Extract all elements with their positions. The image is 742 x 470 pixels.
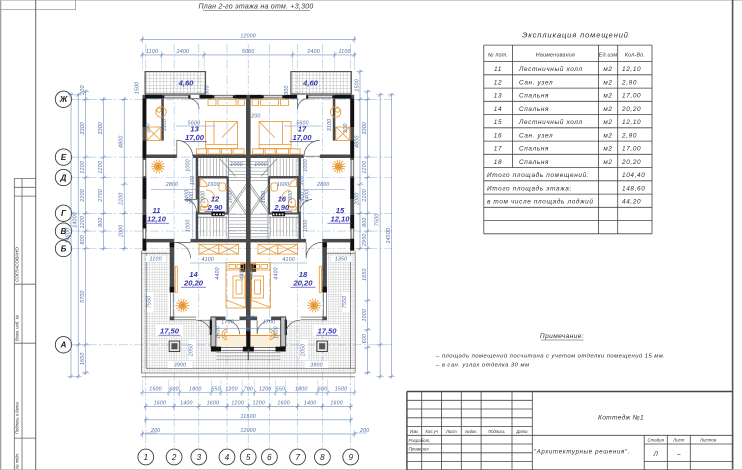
svg-text:3: 3 bbox=[197, 453, 202, 462]
svg-text:1600: 1600 bbox=[154, 401, 167, 407]
svg-text:5: 5 bbox=[246, 453, 251, 462]
svg-text:1000: 1000 bbox=[186, 219, 192, 232]
svg-text:м2: м2 bbox=[603, 79, 612, 86]
svg-text:17,00: 17,00 bbox=[622, 146, 641, 153]
svg-text:Б: Б bbox=[61, 244, 67, 253]
svg-text:11: 11 bbox=[494, 66, 502, 73]
svg-text:Проверил: Проверил bbox=[409, 447, 430, 452]
svg-text:Подпись и дата: Подпись и дата bbox=[15, 402, 20, 434]
svg-text:9: 9 bbox=[348, 453, 353, 462]
svg-text:600: 600 bbox=[318, 387, 327, 393]
svg-text:Ж: Ж bbox=[59, 95, 68, 104]
svg-text:18: 18 bbox=[494, 159, 502, 166]
svg-text:– в сан. узлах отделка 30: – в сан. узлах отделка 30 мм bbox=[435, 363, 529, 369]
svg-text:Кол.уч: Кол.уч bbox=[425, 429, 438, 434]
svg-text:2400: 2400 bbox=[299, 192, 305, 206]
svg-text:Изм.: Изм. bbox=[410, 429, 419, 434]
svg-text:4400: 4400 bbox=[274, 267, 280, 280]
svg-text:14000: 14000 bbox=[73, 212, 79, 228]
svg-text:1200: 1200 bbox=[225, 387, 238, 393]
svg-text:17: 17 bbox=[494, 146, 502, 153]
svg-text:2400: 2400 bbox=[176, 49, 190, 55]
svg-text:Экспликация помещений: Экспликация помещений bbox=[522, 31, 629, 40]
svg-text:Е: Е bbox=[61, 153, 67, 162]
svg-text:1800: 1800 bbox=[261, 191, 267, 204]
svg-text:200: 200 bbox=[343, 123, 349, 133]
svg-text:1800: 1800 bbox=[189, 387, 202, 393]
svg-text:2400: 2400 bbox=[189, 192, 195, 206]
svg-text:300: 300 bbox=[205, 85, 211, 94]
svg-text:12000: 12000 bbox=[240, 34, 256, 40]
svg-text:7550: 7550 bbox=[342, 296, 348, 309]
svg-text:1700: 1700 bbox=[263, 320, 276, 326]
svg-text:2200: 2200 bbox=[119, 192, 125, 206]
svg-text:4400: 4400 bbox=[249, 267, 255, 280]
svg-text:1200: 1200 bbox=[98, 161, 104, 174]
svg-text:–: – bbox=[676, 451, 681, 458]
svg-text:2950: 2950 bbox=[362, 234, 368, 248]
svg-text:20,20: 20,20 bbox=[292, 279, 313, 288]
svg-text:1400: 1400 bbox=[180, 401, 193, 407]
svg-text:2000: 2000 bbox=[201, 191, 207, 205]
svg-text:20,20: 20,20 bbox=[621, 159, 641, 166]
svg-text:1000: 1000 bbox=[230, 162, 243, 168]
svg-text:1200: 1200 bbox=[231, 401, 244, 407]
svg-text:17,50: 17,50 bbox=[317, 327, 337, 336]
svg-text:2000: 2000 bbox=[119, 225, 125, 239]
svg-text:1500: 1500 bbox=[135, 82, 141, 95]
svg-text:"Архитектурные решения".: "Архитектурные решения". bbox=[534, 450, 630, 456]
svg-text:17,00: 17,00 bbox=[292, 133, 312, 142]
svg-text:12,10: 12,10 bbox=[147, 215, 167, 224]
svg-text:5000: 5000 bbox=[242, 49, 255, 55]
svg-text:Кол-Во.: Кол-Во. bbox=[625, 53, 645, 59]
svg-text:Сан. узел: Сан. узел bbox=[519, 132, 553, 139]
svg-text:16: 16 bbox=[494, 132, 502, 139]
svg-text:17,00: 17,00 bbox=[185, 133, 205, 142]
svg-text:№док.: №док. bbox=[465, 429, 477, 434]
svg-text:2700: 2700 bbox=[98, 189, 104, 203]
svg-text:100: 100 bbox=[299, 176, 305, 185]
svg-text:148,60: 148,60 bbox=[622, 185, 645, 192]
svg-text:600: 600 bbox=[169, 387, 178, 393]
svg-text:План 2-го этажа на отм. +3,300: План 2-го этажа на отм. +3,300 bbox=[198, 4, 313, 11]
svg-text:5600: 5600 bbox=[188, 121, 201, 127]
svg-text:800: 800 bbox=[80, 235, 86, 244]
svg-text:8: 8 bbox=[320, 453, 325, 462]
svg-text:Подпись: Подпись bbox=[488, 429, 505, 434]
svg-text:4: 4 bbox=[225, 453, 230, 462]
svg-text:1000: 1000 bbox=[362, 309, 368, 322]
svg-text:Наименования: Наименования bbox=[536, 53, 575, 59]
svg-text:м2: м2 bbox=[603, 119, 612, 126]
svg-text:17,00: 17,00 bbox=[622, 93, 641, 100]
svg-text:2050: 2050 bbox=[188, 344, 194, 358]
svg-text:200: 200 bbox=[244, 316, 254, 322]
svg-text:3900: 3900 bbox=[174, 362, 187, 368]
svg-text:1800: 1800 bbox=[295, 387, 308, 393]
svg-text:Спальня: Спальня bbox=[519, 159, 549, 166]
svg-text:104,40: 104,40 bbox=[622, 172, 645, 179]
svg-text:12,10: 12,10 bbox=[622, 66, 641, 73]
svg-text:11600: 11600 bbox=[241, 414, 256, 420]
svg-text:1200: 1200 bbox=[80, 216, 86, 229]
svg-text:2,90: 2,90 bbox=[621, 132, 637, 139]
svg-text:550: 550 bbox=[211, 387, 220, 393]
svg-text:12,10: 12,10 bbox=[330, 215, 350, 224]
svg-text:1500: 1500 bbox=[355, 79, 361, 92]
svg-text:Сан. узел: Сан. узел bbox=[519, 79, 553, 86]
svg-text:1600: 1600 bbox=[330, 401, 343, 407]
svg-text:№ пот.: № пот. bbox=[488, 53, 508, 59]
svg-text:Ед.изм: Ед.изм bbox=[599, 53, 618, 59]
svg-text:200: 200 bbox=[146, 123, 152, 133]
svg-text:2,90: 2,90 bbox=[207, 203, 224, 212]
svg-text:4800: 4800 bbox=[355, 135, 361, 148]
svg-text:2000: 2000 bbox=[288, 191, 294, 205]
svg-text:14500: 14500 bbox=[386, 228, 392, 244]
svg-text:Лестничный холл: Лестничный холл bbox=[518, 118, 583, 126]
svg-text:4100: 4100 bbox=[282, 257, 295, 263]
svg-text:3900: 3900 bbox=[310, 362, 323, 368]
svg-text:Примечание:: Примечание: bbox=[540, 333, 584, 340]
svg-text:1400: 1400 bbox=[304, 401, 317, 407]
svg-text:12,10: 12,10 bbox=[622, 119, 641, 126]
svg-text:№ подл.: № подл. bbox=[15, 453, 20, 469]
svg-text:100: 100 bbox=[190, 176, 196, 185]
svg-text:1000: 1000 bbox=[247, 166, 253, 179]
svg-text:200: 200 bbox=[80, 85, 86, 95]
svg-text:1100: 1100 bbox=[339, 49, 351, 55]
svg-text:14: 14 bbox=[494, 106, 502, 113]
svg-text:1000: 1000 bbox=[254, 162, 267, 168]
svg-text:в том числе площадь лоджий: в том числе площадь лоджий bbox=[487, 198, 594, 206]
svg-text:2800: 2800 bbox=[165, 182, 179, 188]
svg-text:Лист: Лист bbox=[672, 437, 685, 442]
svg-text:2400: 2400 bbox=[306, 49, 320, 55]
svg-text:Итого площадь этажа:: Итого площадь этажа: bbox=[487, 184, 572, 192]
svg-text:3300: 3300 bbox=[80, 122, 86, 135]
svg-text:Спальня: Спальня bbox=[519, 106, 549, 113]
svg-text:1600: 1600 bbox=[207, 182, 220, 188]
svg-text:6: 6 bbox=[267, 453, 272, 462]
svg-text:– площадь помещений посчит: – площадь помещений посчитана с учетом о… bbox=[435, 353, 665, 360]
svg-text:3300: 3300 bbox=[362, 122, 368, 135]
svg-text:Спальня: Спальня bbox=[519, 93, 549, 100]
svg-text:1350: 1350 bbox=[335, 257, 348, 263]
svg-text:15: 15 bbox=[494, 119, 502, 126]
svg-text:7500: 7500 bbox=[375, 214, 381, 227]
svg-text:2,90: 2,90 bbox=[621, 79, 637, 86]
svg-text:1000: 1000 bbox=[186, 159, 192, 172]
svg-text:2000: 2000 bbox=[355, 192, 361, 206]
svg-text:4400: 4400 bbox=[240, 267, 246, 280]
svg-text:7: 7 bbox=[295, 453, 300, 462]
svg-text:1650: 1650 bbox=[80, 353, 86, 366]
svg-text:550: 550 bbox=[276, 387, 285, 393]
svg-text:20,20: 20,20 bbox=[183, 279, 204, 288]
svg-text:м2: м2 bbox=[603, 66, 612, 73]
svg-text:12000: 12000 bbox=[240, 428, 256, 434]
svg-text:3100: 3100 bbox=[327, 119, 333, 132]
svg-text:13: 13 bbox=[494, 93, 502, 100]
svg-text:Д: Д bbox=[60, 173, 67, 182]
svg-text:3300: 3300 bbox=[98, 122, 104, 135]
svg-text:2200: 2200 bbox=[80, 189, 86, 203]
svg-text:14500: 14500 bbox=[66, 228, 72, 244]
svg-text:СОГЛАСОВАНО: СОГЛАСОВАНО bbox=[15, 247, 20, 282]
svg-text:2,90: 2,90 bbox=[273, 203, 290, 212]
svg-text:м2: м2 bbox=[603, 93, 612, 100]
svg-text:2: 2 bbox=[171, 453, 177, 462]
svg-text:м2: м2 bbox=[603, 106, 612, 113]
svg-text:2200: 2200 bbox=[362, 189, 368, 203]
svg-text:1650: 1650 bbox=[362, 268, 368, 281]
svg-text:Дата: Дата bbox=[515, 429, 528, 434]
svg-text:1200: 1200 bbox=[80, 161, 86, 174]
svg-text:1200: 1200 bbox=[259, 387, 272, 393]
svg-text:Спальня: Спальня bbox=[519, 146, 549, 153]
svg-text:4100: 4100 bbox=[202, 257, 215, 263]
svg-text:1700: 1700 bbox=[221, 320, 234, 326]
svg-text:300: 300 bbox=[284, 85, 290, 94]
svg-text:м2: м2 bbox=[603, 146, 612, 153]
svg-text:4400: 4400 bbox=[215, 267, 221, 280]
svg-text:4800: 4800 bbox=[119, 135, 125, 148]
svg-text:1600: 1600 bbox=[273, 326, 279, 339]
svg-text:17,50: 17,50 bbox=[160, 327, 180, 336]
svg-text:1600: 1600 bbox=[277, 401, 290, 407]
svg-text:800: 800 bbox=[98, 217, 104, 226]
svg-text:1800: 1800 bbox=[228, 191, 234, 204]
svg-text:Стадия: Стадия bbox=[647, 437, 664, 442]
svg-text:м2: м2 bbox=[603, 132, 612, 139]
svg-text:2800: 2800 bbox=[316, 182, 330, 188]
svg-text:5600: 5600 bbox=[296, 121, 309, 127]
svg-text:700: 700 bbox=[244, 387, 253, 393]
svg-text:4,60: 4,60 bbox=[302, 79, 319, 88]
svg-text:2050: 2050 bbox=[300, 344, 306, 358]
svg-text:20,20: 20,20 bbox=[621, 106, 641, 113]
svg-text:1100: 1100 bbox=[150, 257, 162, 263]
svg-text:12: 12 bbox=[494, 79, 502, 86]
svg-text:1100: 1100 bbox=[146, 49, 158, 55]
svg-text:1: 1 bbox=[144, 453, 148, 462]
svg-text:Лестничный холл: Лестничный холл bbox=[518, 65, 583, 73]
svg-text:Листов: Листов bbox=[699, 437, 717, 442]
svg-text:1600: 1600 bbox=[277, 182, 290, 188]
svg-text:Л: Л bbox=[653, 451, 659, 458]
svg-text:3100: 3100 bbox=[162, 119, 168, 132]
svg-text:Взам. инб. №: Взам. инб. № bbox=[15, 314, 20, 341]
svg-text:7550: 7550 bbox=[147, 296, 153, 309]
svg-text:4,60: 4,60 bbox=[178, 79, 195, 88]
svg-text:1500: 1500 bbox=[335, 387, 348, 393]
svg-text:5700: 5700 bbox=[80, 290, 86, 303]
svg-text:Коттедж №1: Коттедж №1 bbox=[598, 414, 644, 422]
svg-text:Итого площадь помещений:: Итого площадь помещений: bbox=[487, 171, 589, 179]
svg-text:Лист: Лист bbox=[445, 429, 457, 434]
svg-text:Разработ.: Разработ. bbox=[409, 438, 431, 443]
svg-text:44,20: 44,20 bbox=[622, 199, 641, 206]
svg-text:200: 200 bbox=[250, 114, 260, 120]
svg-text:А: А bbox=[60, 341, 67, 350]
svg-text:1200: 1200 bbox=[253, 401, 266, 407]
svg-text:1600: 1600 bbox=[215, 326, 221, 339]
svg-text:800: 800 bbox=[362, 217, 368, 226]
svg-text:1200: 1200 bbox=[362, 161, 368, 174]
svg-text:1500: 1500 bbox=[149, 387, 162, 393]
svg-text:м2: м2 bbox=[603, 159, 612, 166]
svg-text:1600: 1600 bbox=[207, 401, 220, 407]
svg-text:600: 600 bbox=[362, 334, 368, 343]
